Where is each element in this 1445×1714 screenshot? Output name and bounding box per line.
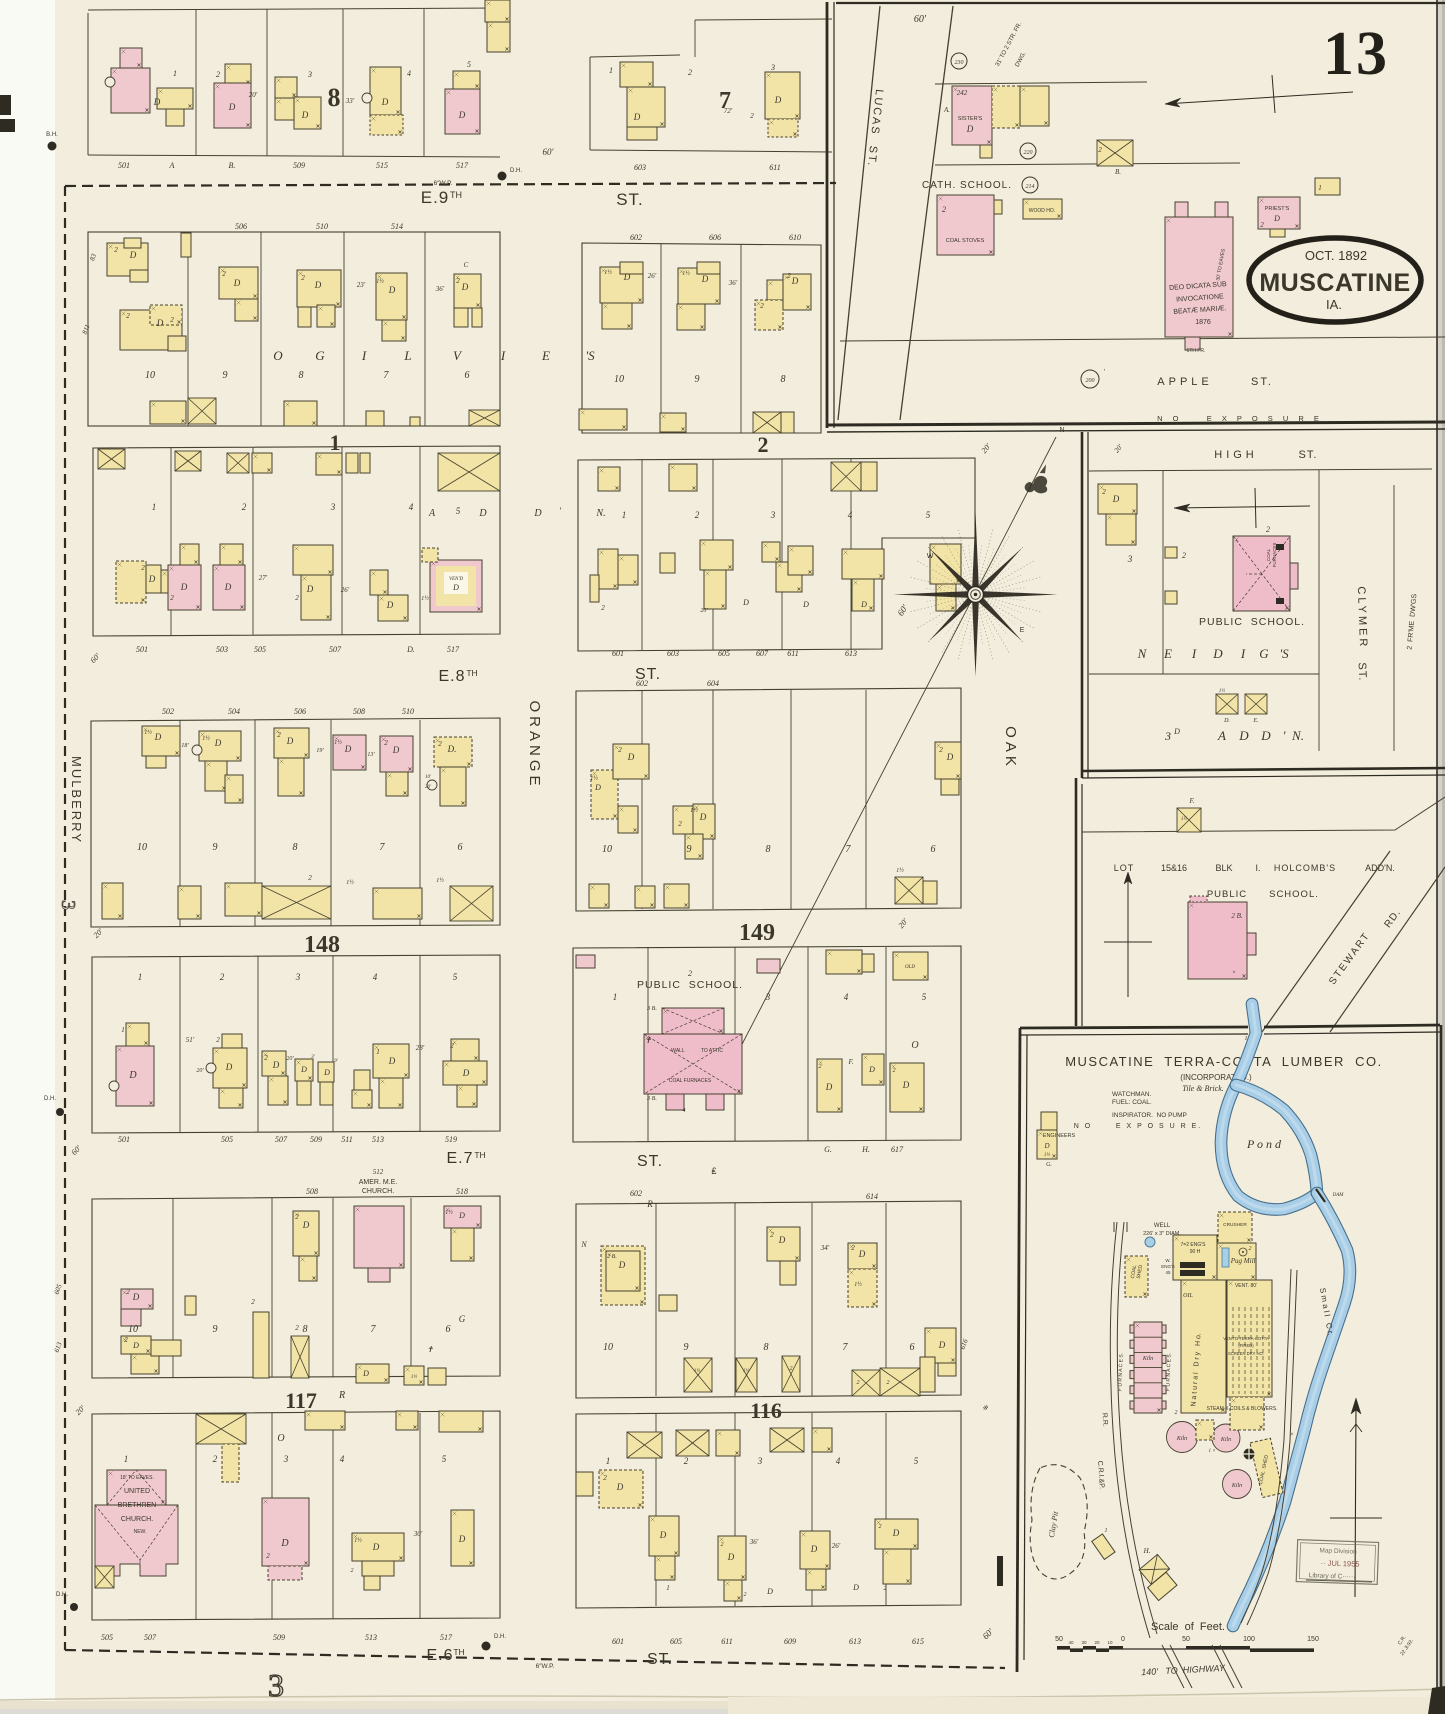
svg-text:2: 2 <box>1249 1246 1252 1252</box>
svg-text:1: 1 <box>330 430 341 455</box>
svg-text:3 B.: 3 B. <box>646 1006 657 1012</box>
svg-text:9: 9 <box>695 374 700 385</box>
svg-text:605: 605 <box>718 649 730 658</box>
svg-text:214: 214 <box>1026 183 1035 190</box>
svg-text:D: D <box>627 752 635 762</box>
svg-text:Scale of Feet.: Scale of Feet. <box>1151 1621 1225 1633</box>
svg-text:605: 605 <box>670 1637 682 1646</box>
svg-text:ST.: ST. <box>637 1153 663 1170</box>
svg-text:PUBLIC SCHOOL.: PUBLIC SCHOOL. <box>637 979 743 991</box>
svg-text:3: 3 <box>770 510 776 520</box>
svg-text:1 ×: 1 × <box>1208 1449 1215 1454</box>
svg-text:60′: 60′ <box>543 147 555 157</box>
svg-text:2: 2 <box>384 739 388 747</box>
svg-text:603: 603 <box>667 649 679 658</box>
svg-text:D: D <box>388 1056 396 1066</box>
svg-text:2: 2 <box>750 112 754 120</box>
svg-text:N.: N. <box>1291 728 1304 743</box>
svg-text:G: G <box>459 1314 466 1324</box>
svg-text:607: 607 <box>756 649 769 658</box>
svg-text:APPLE: APPLE <box>1157 376 1212 388</box>
svg-text:N.: N. <box>595 508 605 519</box>
svg-text:2: 2 <box>1182 551 1186 560</box>
svg-text:10: 10 <box>614 374 624 385</box>
svg-text:220: 220 <box>1024 150 1033 156</box>
svg-text:D: D <box>214 738 222 748</box>
svg-text:5: 5 <box>456 506 461 516</box>
svg-text:116: 116 <box>750 1398 782 1423</box>
svg-text:508: 508 <box>306 1187 318 1196</box>
svg-text:604: 604 <box>707 679 719 688</box>
svg-text:6TH FR.: 6TH FR. <box>1187 348 1206 354</box>
svg-text:TO ATTIC: TO ATTIC <box>701 1048 723 1054</box>
svg-text:E.: E. <box>1252 718 1258 724</box>
svg-text:D: D <box>224 582 232 592</box>
svg-text:E: E <box>1020 627 1025 634</box>
svg-text:1½: 1½ <box>334 739 342 746</box>
svg-text:3: 3 <box>268 1667 284 1703</box>
svg-text:2: 2 <box>251 1298 255 1306</box>
svg-text:VEN'D: VEN'D <box>449 577 464 582</box>
svg-text:2: 2 <box>308 874 312 882</box>
svg-text:2: 2 <box>893 1068 896 1074</box>
svg-text:BLK: BLK <box>1215 863 1232 873</box>
svg-text:615: 615 <box>912 1637 924 1646</box>
svg-text:36′: 36′ <box>435 285 445 293</box>
svg-text:1: 1 <box>376 1048 380 1056</box>
svg-text:2: 2 <box>213 1454 218 1464</box>
svg-text:602: 602 <box>636 679 648 688</box>
svg-text:2 B.: 2 B. <box>1231 912 1243 920</box>
svg-text:3: 3 <box>307 70 312 79</box>
svg-text:504: 504 <box>228 707 240 716</box>
svg-text:D: D <box>868 1065 875 1074</box>
svg-text:D: D <box>774 95 782 105</box>
svg-text:505: 505 <box>101 1633 113 1642</box>
svg-text:2: 2 <box>760 302 764 310</box>
svg-text:COAL STOVES: COAL STOVES <box>946 238 985 244</box>
svg-text:VENT'D TERRA-COTTA: VENT'D TERRA-COTTA <box>1223 1336 1269 1341</box>
svg-text:D: D <box>892 1528 900 1538</box>
svg-text:502: 502 <box>162 707 174 716</box>
svg-text:30′: 30′ <box>413 1530 423 1538</box>
svg-text:INSPIRATOR. NO PUMP: INSPIRATOR. NO PUMP <box>1112 1112 1187 1119</box>
svg-text:40: 40 <box>1068 1640 1074 1645</box>
svg-text:H.: H. <box>1143 1547 1151 1555</box>
svg-text:8: 8 <box>299 370 304 381</box>
svg-text:ST.: ST. <box>616 190 644 209</box>
svg-text:230: 230 <box>955 60 964 66</box>
svg-text:×: × <box>1232 970 1236 976</box>
svg-text:IA.: IA. <box>1326 297 1342 312</box>
svg-text:D: D <box>1273 214 1280 223</box>
svg-text:ST.: ST. <box>1299 449 1318 461</box>
svg-text:6: 6 <box>910 1342 915 1353</box>
svg-text:D: D <box>966 124 974 134</box>
svg-text:D: D <box>156 318 164 328</box>
svg-text:ST.: ST. <box>1356 662 1369 681</box>
svg-text:505: 505 <box>221 1135 233 1144</box>
svg-text:1½: 1½ <box>604 269 612 276</box>
svg-text:2: 2 <box>1102 488 1106 496</box>
svg-text:5: 5 <box>442 1454 447 1464</box>
svg-text:1½: 1½ <box>682 270 690 277</box>
svg-text:D: D <box>458 110 466 120</box>
svg-text:Kiln: Kiln <box>1231 1483 1242 1489</box>
svg-text:23′: 23′ <box>357 281 366 289</box>
svg-text:I: I <box>1191 646 1197 661</box>
svg-text:511: 511 <box>341 1135 352 1144</box>
svg-text:※: ※ <box>982 1404 988 1412</box>
svg-text:10: 10 <box>145 370 155 381</box>
svg-text:E.9: E.9 <box>421 188 450 207</box>
svg-text:510: 510 <box>402 707 414 716</box>
svg-text:ENG'S: ENG'S <box>1161 1264 1175 1269</box>
svg-text:O: O <box>273 348 283 363</box>
svg-text:1: 1 <box>121 1026 125 1034</box>
svg-text:PRIEST'S: PRIEST'S <box>1265 206 1290 212</box>
svg-text:D: D <box>452 583 459 592</box>
svg-text:60′: 60′ <box>914 14 927 25</box>
svg-text:ENGINEERS: ENGINEERS <box>1043 1133 1076 1139</box>
svg-text:TH: TH <box>466 668 477 678</box>
svg-text:D: D <box>306 584 314 594</box>
svg-text:1½: 1½ <box>376 278 384 285</box>
svg-text:10: 10 <box>603 1342 613 1353</box>
svg-text:9: 9 <box>213 842 218 853</box>
svg-text:D: D <box>132 1341 139 1350</box>
svg-text:2: 2 <box>601 604 605 612</box>
svg-text:507: 507 <box>329 645 342 654</box>
svg-text:517: 517 <box>447 645 460 654</box>
svg-text:601: 601 <box>612 649 624 658</box>
svg-text:2: 2 <box>678 820 682 828</box>
svg-text:1½: 1½ <box>690 807 698 814</box>
svg-text:ST.: ST. <box>647 1651 673 1668</box>
svg-text:D.H.: D.H. <box>494 1634 506 1640</box>
svg-text:2: 2 <box>1266 525 1270 534</box>
svg-text:603: 603 <box>634 163 646 172</box>
svg-text:D: D <box>302 1220 310 1230</box>
svg-text:2: 2 <box>857 1380 860 1386</box>
svg-text:COAL FURNACES: COAL FURNACES <box>669 1078 712 1084</box>
svg-text:₤: ₤ <box>711 1166 716 1176</box>
svg-text:R: R <box>646 1199 653 1209</box>
svg-text:45: 45 <box>1165 1270 1171 1275</box>
svg-text:18′: 18′ <box>181 743 189 749</box>
svg-text:A: A <box>428 508 436 519</box>
svg-text:AMER. M.E.: AMER. M.E. <box>359 1179 398 1186</box>
svg-text:D: D <box>372 1542 380 1552</box>
svg-text:N: N <box>580 1240 587 1249</box>
svg-text:✝: ✝ <box>645 1036 652 1045</box>
svg-text:WATCHMAN.: WATCHMAN. <box>1112 1091 1152 1098</box>
svg-text:B.: B. <box>229 161 236 170</box>
svg-text:72′: 72′ <box>724 107 733 115</box>
svg-text:50: 50 <box>1055 1636 1063 1643</box>
svg-text:Pug Mill.: Pug Mill. <box>1230 1257 1258 1265</box>
svg-text:D.: D. <box>406 645 415 654</box>
svg-text:2: 2 <box>688 969 692 978</box>
svg-text:2: 2 <box>790 1366 793 1372</box>
svg-text:F.: F. <box>1188 797 1194 805</box>
svg-text:TH: TH <box>453 1647 464 1657</box>
svg-text:506: 506 <box>235 222 247 231</box>
svg-text:MULBERRY: MULBERRY <box>69 756 84 844</box>
svg-text:4: 4 <box>409 502 414 512</box>
svg-text:2: 2 <box>770 1231 774 1239</box>
svg-text:513: 513 <box>365 1633 377 1642</box>
svg-text:D: D <box>623 272 631 282</box>
svg-text:H.: H. <box>861 1145 870 1154</box>
svg-text:MUSCATINE TERRA-COTTA LUMBER: MUSCATINE TERRA-COTTA LUMBER CO. <box>1065 1054 1383 1069</box>
svg-text:I: I <box>500 348 506 363</box>
svg-text:D: D <box>860 600 867 609</box>
svg-text:8: 8 <box>303 1324 308 1335</box>
svg-text:149: 149 <box>739 920 775 946</box>
svg-text:2: 2 <box>114 246 118 254</box>
svg-text:2: 2 <box>170 594 174 602</box>
svg-text:2: 2 <box>887 1380 890 1386</box>
svg-text:1½: 1½ <box>421 595 429 602</box>
svg-text:1½: 1½ <box>743 1369 750 1374</box>
svg-text:36′: 36′ <box>728 279 738 287</box>
svg-text:517: 517 <box>456 161 469 170</box>
svg-text:D: D <box>153 97 161 107</box>
svg-text:51′: 51′ <box>186 1036 195 1044</box>
svg-text:33′: 33′ <box>345 97 355 105</box>
svg-text:503: 503 <box>216 645 228 654</box>
svg-text:D: D <box>280 1538 289 1549</box>
svg-text:D: D <box>633 112 641 122</box>
svg-text:20′: 20′ <box>700 608 708 614</box>
svg-text:242: 242 <box>957 89 968 97</box>
svg-text:10: 10 <box>137 842 147 853</box>
svg-text:3: 3 <box>1127 554 1133 564</box>
svg-text:2: 2 <box>1260 221 1264 229</box>
svg-text:3: 3 <box>757 1456 763 1466</box>
svg-text:D.: D. <box>447 744 457 754</box>
svg-text:C: C <box>464 261 469 269</box>
svg-text:Kiln: Kiln <box>1142 1356 1153 1362</box>
svg-text:1½: 1½ <box>1181 817 1188 822</box>
svg-text:20: 20 <box>1094 1640 1100 1645</box>
svg-text:D: D <box>858 1249 866 1259</box>
svg-text:5: 5 <box>453 972 458 982</box>
svg-text:1½: 1½ <box>346 879 354 886</box>
svg-text:D: D <box>301 110 309 120</box>
svg-text:1876: 1876 <box>1195 319 1211 326</box>
svg-text:2: 2 <box>220 972 225 982</box>
svg-text:2: 2 <box>884 1586 887 1592</box>
svg-text:'S: 'S <box>1279 646 1289 661</box>
svg-text:10: 10 <box>128 1324 138 1335</box>
svg-text:507: 507 <box>275 1135 288 1144</box>
svg-text:D: D <box>300 1065 307 1074</box>
svg-text:SCREEN DRY HO.: SCREEN DRY HO. <box>1228 1351 1264 1356</box>
svg-text:HOLCOMB'S: HOLCOMB'S <box>1274 863 1336 873</box>
svg-text:610: 610 <box>789 233 801 242</box>
svg-text:518: 518 <box>456 1187 468 1196</box>
svg-text:D: D <box>1238 728 1249 743</box>
svg-text:O: O <box>277 1433 284 1444</box>
svg-text:WOOD HO.: WOOD HO. <box>1029 208 1055 214</box>
svg-text:26′: 26′ <box>648 272 657 280</box>
svg-text:G.: G. <box>1046 1162 1052 1168</box>
svg-text:D: D <box>766 1587 773 1596</box>
svg-text:2: 2 <box>438 740 442 748</box>
svg-text:117: 117 <box>285 1388 317 1413</box>
svg-text:D: D <box>344 744 352 754</box>
svg-text:8: 8 <box>781 374 786 385</box>
svg-text:5: 5 <box>914 1456 919 1466</box>
svg-text:P o n d: P o n d <box>1246 1137 1282 1151</box>
svg-text:5: 5 <box>467 60 471 69</box>
svg-text:2: 2 <box>264 1054 268 1062</box>
svg-text:D: D <box>778 1235 786 1245</box>
svg-text:510: 510 <box>316 222 328 231</box>
svg-text:F.: F. <box>847 1058 853 1066</box>
svg-text:ORANGE: ORANGE <box>526 700 543 789</box>
svg-text:G: G <box>315 348 325 363</box>
svg-text:2: 2 <box>879 1524 882 1530</box>
svg-text:OAK: OAK <box>1002 726 1019 770</box>
svg-text:D: D <box>791 276 799 286</box>
svg-text:OCT. 1892: OCT. 1892 <box>1305 248 1367 263</box>
svg-text:2: 2 <box>939 746 943 754</box>
svg-text:D: D <box>852 1583 859 1592</box>
svg-text:2: 2 <box>295 1324 299 1332</box>
svg-text:1½: 1½ <box>144 729 152 736</box>
svg-text:R: R <box>338 1390 345 1401</box>
svg-text:B.H.: B.H. <box>46 132 58 138</box>
svg-text:1½: 1½ <box>445 1209 453 1216</box>
svg-text:D: D <box>458 1211 465 1220</box>
svg-text:D: D <box>392 745 400 755</box>
svg-text:514: 514 <box>391 222 403 231</box>
svg-text:10: 10 <box>1107 1640 1113 1645</box>
svg-text:I.: I. <box>1255 863 1260 873</box>
svg-text:Map Division: Map Division <box>1319 1547 1357 1555</box>
svg-text:BRETHREN: BRETHREN <box>118 1502 157 1509</box>
svg-text:D: D <box>461 282 469 292</box>
svg-text:508: 508 <box>353 707 365 716</box>
svg-text:2: 2 <box>688 68 692 77</box>
svg-text:L: L <box>403 348 411 363</box>
svg-text:6: 6 <box>465 370 470 381</box>
svg-text:WALL: WALL <box>671 1048 685 1054</box>
svg-text:N O E X P O S U R E.: N O E X P O S U R E. <box>1074 1123 1202 1130</box>
svg-text:B.: B. <box>1115 168 1121 176</box>
svg-text:4: 4 <box>373 972 378 982</box>
svg-text:A: A <box>169 161 175 170</box>
svg-text:1½: 1½ <box>202 735 210 742</box>
svg-text:611: 611 <box>787 649 798 658</box>
svg-text:D: D <box>616 1482 624 1492</box>
svg-text:507: 507 <box>144 1633 157 1642</box>
svg-text:1½: 1½ <box>1219 689 1226 694</box>
svg-text:D.H.: D.H. <box>56 1592 68 1598</box>
svg-text:602: 602 <box>630 1189 642 1198</box>
svg-text:505: 505 <box>254 645 266 654</box>
svg-text:9: 9 <box>213 1324 218 1335</box>
svg-text:D: D <box>148 574 156 584</box>
svg-text:1: 1 <box>609 66 613 75</box>
svg-text:2: 2 <box>851 1244 855 1252</box>
svg-text:606: 606 <box>709 233 721 242</box>
svg-text:2: 2 <box>266 1552 270 1560</box>
svg-text:26′: 26′ <box>832 1542 841 1550</box>
svg-text:617: 617 <box>891 1145 904 1154</box>
svg-text:D: D <box>154 732 162 742</box>
svg-text:36′: 36′ <box>749 1538 759 1546</box>
svg-text:2: 2 <box>295 1213 299 1221</box>
svg-text:2: 2 <box>758 432 769 457</box>
svg-text:TH: TH <box>450 190 462 200</box>
svg-text:D.H.: D.H. <box>510 168 522 174</box>
svg-text:Kiln: Kiln <box>1176 1436 1187 1442</box>
svg-text:D: D <box>810 1544 818 1554</box>
svg-text:D: D <box>701 274 709 284</box>
svg-text:PUBLIC: PUBLIC <box>1207 889 1247 900</box>
svg-text:D: D <box>533 508 542 519</box>
svg-text:9: 9 <box>684 1342 689 1353</box>
svg-text:E.6: E.6 <box>426 1647 453 1664</box>
svg-text:D: D <box>132 1292 140 1302</box>
svg-text:1½: 1½ <box>354 1537 362 1544</box>
svg-text:CLYMER: CLYMER <box>1355 586 1369 649</box>
svg-text:D: D <box>1112 494 1120 504</box>
svg-text:9: 9 <box>687 844 692 855</box>
svg-text:2: 2 <box>216 70 220 79</box>
svg-text:20′: 20′ <box>196 1068 204 1074</box>
svg-text:1: 1 <box>666 1584 670 1592</box>
svg-text:4: 4 <box>844 992 849 1002</box>
svg-text:1½: 1½ <box>590 775 598 782</box>
svg-text:611: 611 <box>769 163 780 172</box>
svg-text:501: 501 <box>118 161 130 170</box>
svg-text:NEW.: NEW. <box>134 1529 147 1535</box>
svg-text:N O E X P O S U R E: N O E X P O S U R E <box>1157 414 1323 423</box>
svg-text:STEAM X COILS & BLOWERS.: STEAM X COILS & BLOWERS. <box>1207 1406 1278 1412</box>
svg-text:OIL: OIL <box>1183 1293 1193 1299</box>
svg-text:D: D <box>699 812 707 822</box>
svg-text:20′: 20′ <box>286 1056 294 1062</box>
svg-text:2: 2 <box>695 510 700 520</box>
svg-text:6″W.P.: 6″W.P. <box>434 180 453 187</box>
svg-text:D: D <box>727 1552 735 1562</box>
svg-text:3: 3 <box>770 63 775 72</box>
svg-text:20′: 20′ <box>425 785 432 790</box>
svg-text:18′ TO EAVES.: 18′ TO EAVES. <box>120 1475 154 1481</box>
svg-text:1: 1 <box>1105 1528 1108 1534</box>
svg-text:D: D <box>388 285 396 295</box>
svg-text:1: 1 <box>138 972 143 982</box>
svg-text:PUBLIC SCHOOL.: PUBLIC SCHOOL. <box>1199 616 1305 628</box>
svg-text:D: D <box>180 582 188 592</box>
svg-text:I: I <box>361 348 367 363</box>
svg-text:512: 512 <box>373 1168 384 1176</box>
svg-text:ST.: ST. <box>1251 376 1273 388</box>
svg-text:10′: 10′ <box>425 775 432 780</box>
svg-text:1: 1 <box>124 1454 129 1464</box>
svg-text:D: D <box>1212 646 1223 661</box>
svg-text:501: 501 <box>136 645 148 654</box>
svg-text:513: 513 <box>372 1135 384 1144</box>
svg-text:'S: 'S <box>585 348 595 363</box>
svg-text:D: D <box>1260 728 1271 743</box>
svg-text:3: 3 <box>765 992 771 1002</box>
